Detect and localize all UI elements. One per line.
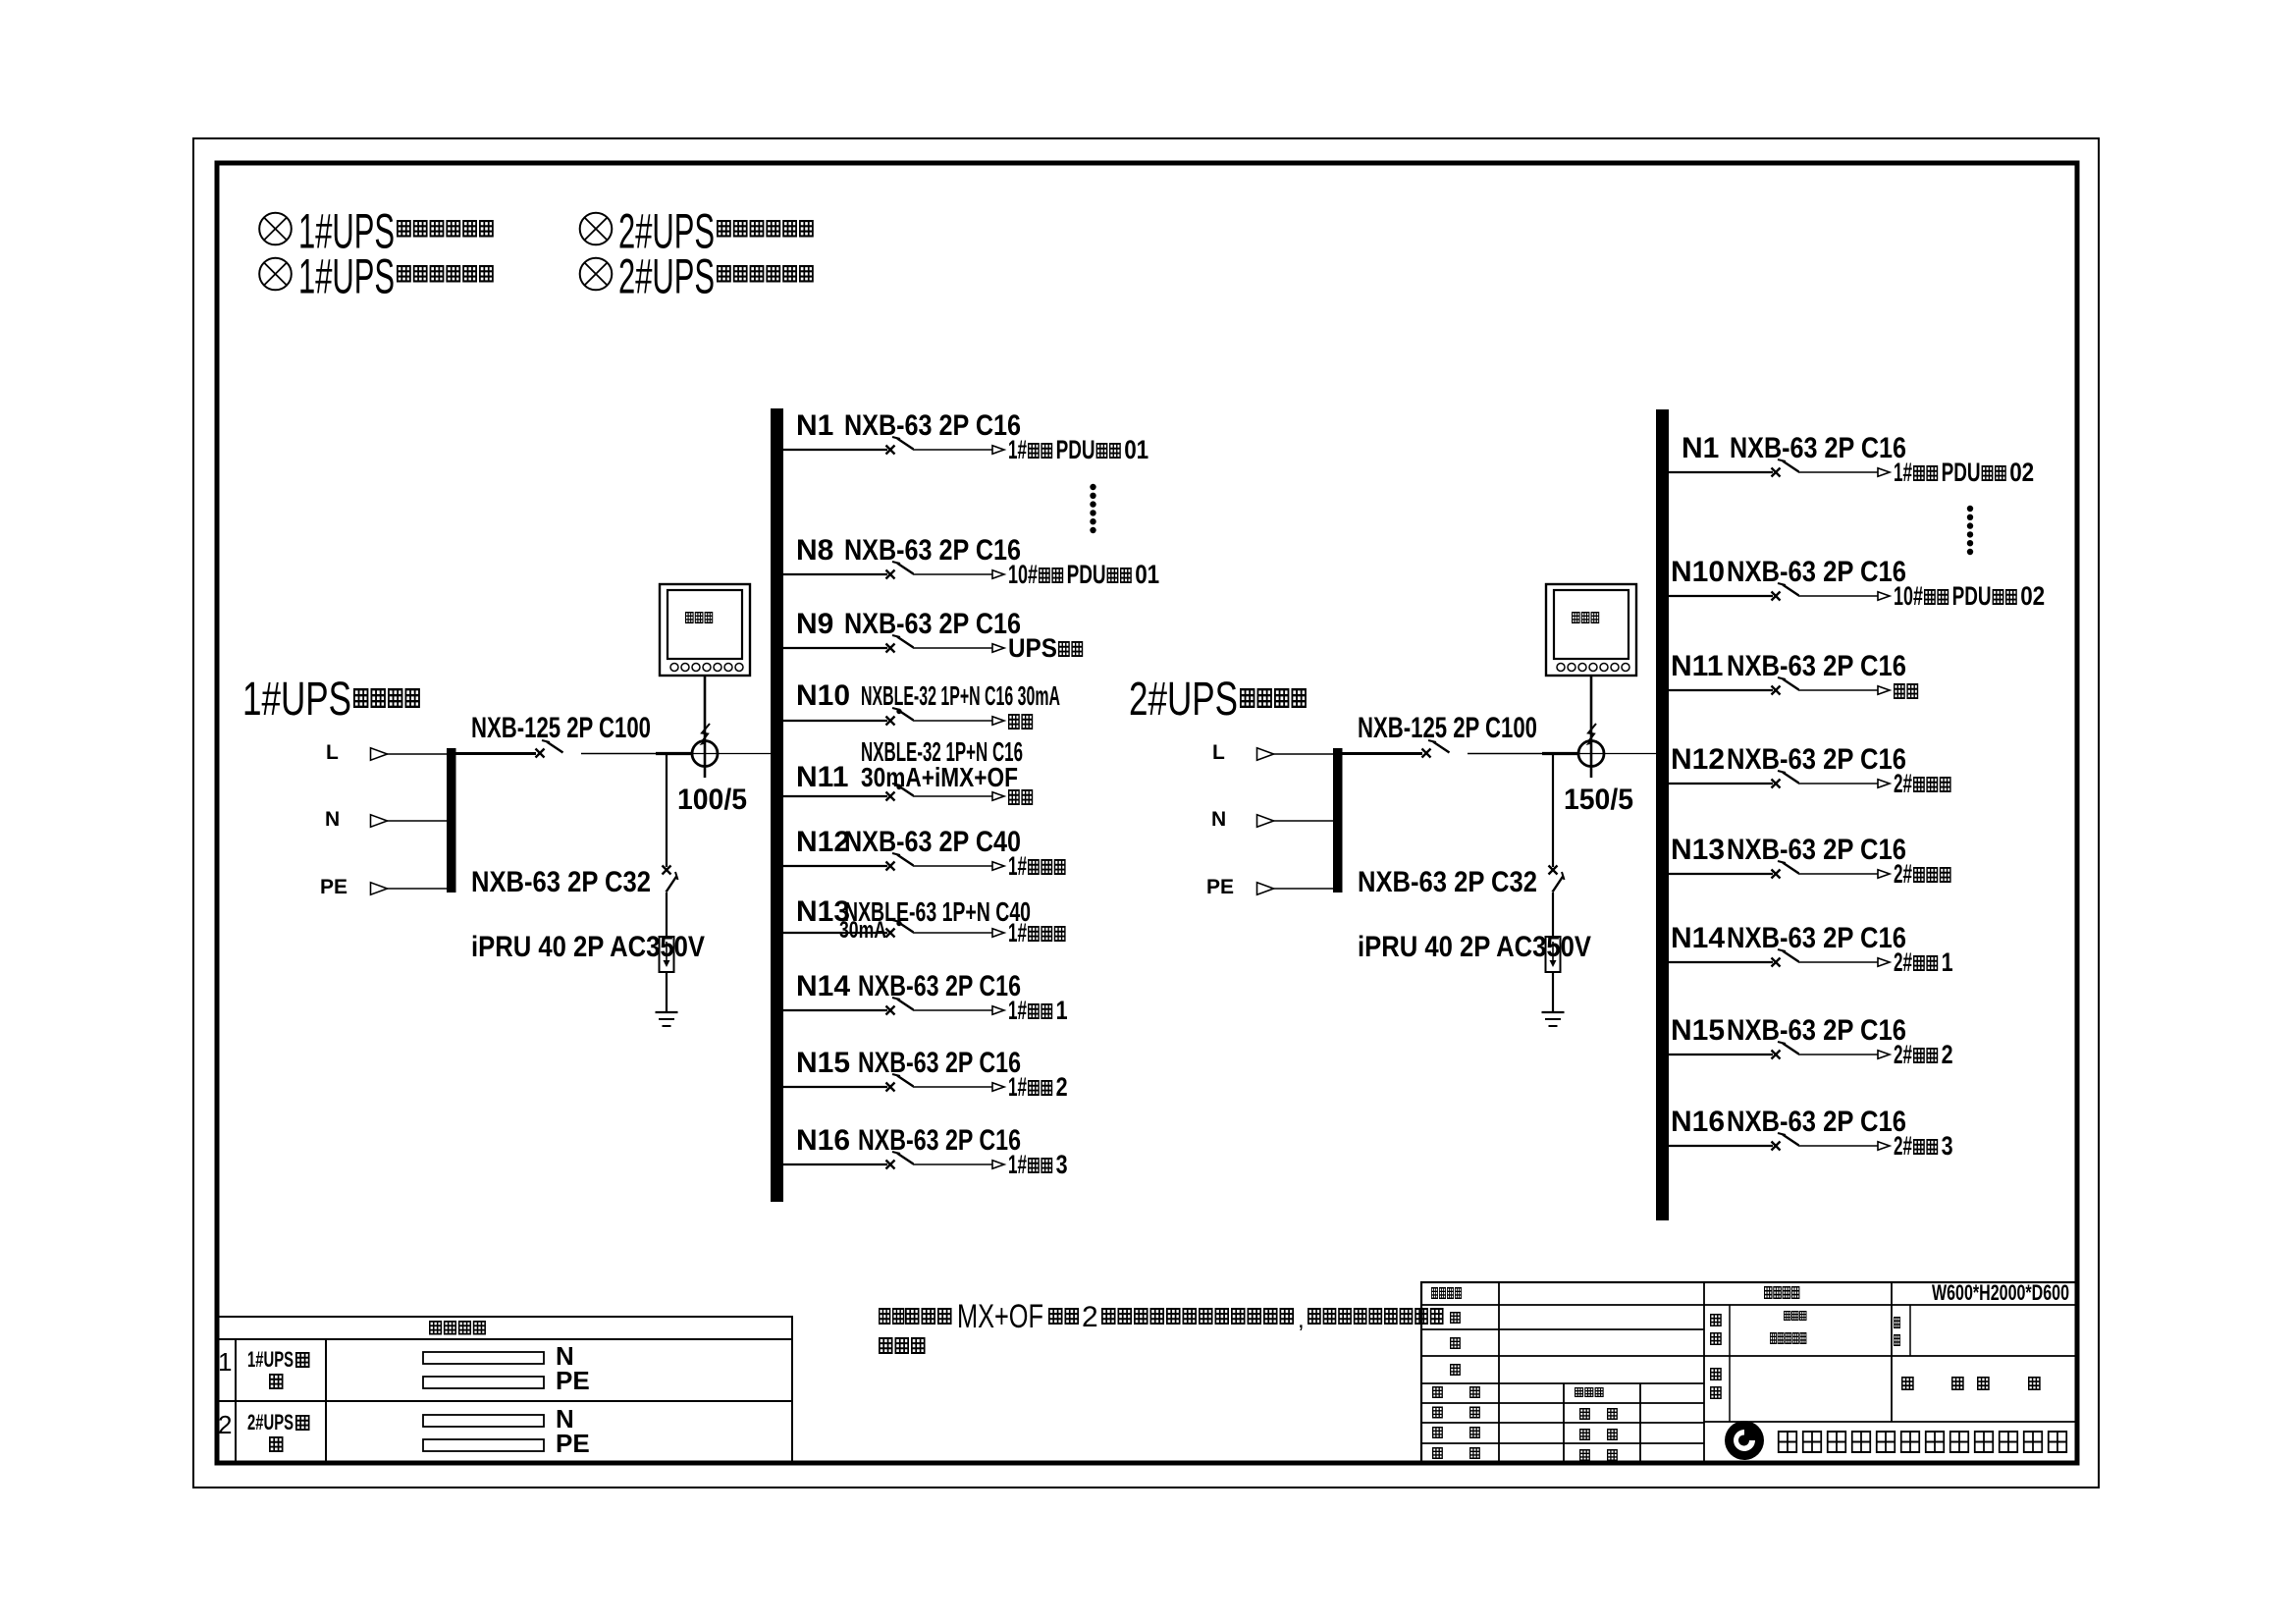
svg-text:PDU: PDU (1067, 560, 1106, 589)
svg-text:1#: 1# (1008, 918, 1027, 947)
svg-text:1#: 1# (1008, 1072, 1027, 1102)
svg-text:,: , (1298, 1307, 1305, 1333)
svg-text:2: 2 (1056, 1072, 1068, 1102)
svg-text:02: 02 (2009, 458, 2034, 487)
svg-text:NXB-63 2P C16: NXB-63 2P C16 (1727, 1106, 1906, 1138)
svg-text:PE: PE (320, 876, 347, 898)
svg-text:W600*H2000*D600: W600*H2000*D600 (1932, 1280, 2069, 1305)
svg-text:NXB-63 2P C16: NXB-63 2P C16 (1727, 922, 1906, 954)
svg-text:NXB-63 2P C16: NXB-63 2P C16 (858, 1124, 1021, 1157)
svg-text:NXB-63 2P C16: NXB-63 2P C16 (1727, 556, 1906, 588)
svg-text:NXB-63 2P C16: NXB-63 2P C16 (1730, 432, 1906, 464)
svg-text:1: 1 (1942, 947, 1953, 977)
svg-text:NXB-63 2P C16: NXB-63 2P C16 (1727, 743, 1906, 776)
svg-text:10#: 10# (1894, 581, 1923, 611)
svg-text:1#UPS: 1#UPS (298, 249, 395, 304)
svg-text:NXB-125 2P C100: NXB-125 2P C100 (1358, 712, 1537, 744)
svg-text:2#: 2# (1894, 947, 1912, 977)
svg-text:N8: N8 (796, 534, 833, 567)
svg-text:1#UPS: 1#UPS (242, 674, 351, 726)
svg-text:1#: 1# (1008, 435, 1027, 464)
svg-text:NXB-63 2P C16: NXB-63 2P C16 (858, 1047, 1021, 1079)
svg-text:NXBLE-32 1P+N C16 30mA: NXBLE-32 1P+N C16 30mA (861, 680, 1060, 711)
svg-text:3: 3 (1056, 1150, 1068, 1179)
svg-text:N14: N14 (796, 970, 850, 1002)
svg-text:N15: N15 (1671, 1014, 1725, 1047)
svg-text:N11: N11 (796, 761, 848, 793)
svg-text:PDU: PDU (1942, 458, 1981, 487)
svg-text:N10: N10 (1671, 556, 1725, 588)
svg-text:N9: N9 (796, 608, 833, 640)
svg-text:N11: N11 (1671, 650, 1723, 682)
svg-text:2#: 2# (1894, 1131, 1912, 1161)
svg-text:30mA: 30mA (839, 917, 886, 944)
svg-text:2#: 2# (1894, 769, 1912, 798)
svg-text:MX+OF: MX+OF (957, 1298, 1043, 1335)
svg-text:NXB-63 2P C16: NXB-63 2P C16 (1727, 1014, 1906, 1047)
svg-text:N16: N16 (796, 1124, 850, 1157)
svg-text:2#UPS: 2#UPS (618, 249, 715, 304)
svg-text:NXB-63 2P C16: NXB-63 2P C16 (1727, 650, 1906, 682)
svg-text:01: 01 (1135, 560, 1159, 589)
svg-text:L: L (326, 741, 339, 764)
svg-text:2: 2 (218, 1410, 232, 1439)
svg-text:2: 2 (1942, 1040, 1953, 1069)
svg-text:01: 01 (1124, 435, 1148, 464)
svg-text:N15: N15 (796, 1047, 850, 1079)
svg-text:N1: N1 (1682, 432, 1719, 464)
svg-text:NXB-63 2P C32: NXB-63 2P C32 (1358, 866, 1537, 898)
svg-text:1#: 1# (1008, 996, 1027, 1025)
svg-text:N14: N14 (1671, 922, 1725, 954)
svg-text:N: N (1211, 808, 1226, 831)
svg-text:PE: PE (556, 1429, 590, 1458)
svg-text:N13: N13 (1671, 834, 1725, 866)
svg-text:NXB-63 2P C40: NXB-63 2P C40 (844, 826, 1021, 858)
svg-text:1#: 1# (1894, 458, 1912, 487)
svg-text:PE: PE (1206, 876, 1234, 898)
svg-text:N12: N12 (796, 826, 850, 858)
svg-text:10#: 10# (1008, 560, 1038, 589)
svg-text:150/5: 150/5 (1564, 784, 1633, 816)
svg-text:NXB-63 2P C16: NXB-63 2P C16 (1727, 834, 1906, 866)
svg-text:2#UPS: 2#UPS (247, 1410, 294, 1434)
svg-text:1: 1 (218, 1347, 232, 1377)
svg-text:2: 2 (1082, 1301, 1098, 1333)
svg-text:PDU: PDU (1952, 581, 1992, 611)
svg-text:1#UPS: 1#UPS (247, 1347, 294, 1372)
svg-text:N1: N1 (796, 409, 833, 442)
svg-text:NXB-63 2P C16: NXB-63 2P C16 (844, 534, 1021, 567)
svg-text:1#: 1# (1008, 1150, 1027, 1179)
svg-text:2#: 2# (1894, 1040, 1912, 1069)
svg-text:2#UPS: 2#UPS (1129, 674, 1238, 726)
svg-text:PE: PE (556, 1366, 590, 1395)
svg-text:NXB-63 2P C16: NXB-63 2P C16 (844, 409, 1021, 442)
svg-text:1: 1 (1056, 996, 1068, 1025)
svg-text:NXB-63 2P C32: NXB-63 2P C32 (471, 866, 651, 898)
svg-text:3: 3 (1942, 1131, 1953, 1161)
svg-text:30mA+iMX+OF: 30mA+iMX+OF (861, 762, 1018, 792)
svg-text:100/5: 100/5 (677, 784, 747, 816)
svg-text:N16: N16 (1671, 1106, 1725, 1138)
svg-text:NXB-63 2P C16: NXB-63 2P C16 (858, 970, 1021, 1002)
svg-text:PDU: PDU (1056, 435, 1095, 464)
svg-text:NXB-63 2P C16: NXB-63 2P C16 (844, 608, 1021, 640)
svg-text:N12: N12 (1671, 743, 1725, 776)
svg-text:2#: 2# (1894, 859, 1912, 889)
svg-text:NXB-125 2P C100: NXB-125 2P C100 (471, 712, 651, 744)
svg-text:1#: 1# (1008, 851, 1027, 881)
svg-text:iPRU 40 2P AC350V: iPRU 40 2P AC350V (1358, 931, 1591, 963)
svg-text:N10: N10 (796, 679, 850, 712)
svg-text:UPS: UPS (1008, 633, 1057, 663)
svg-text:N: N (325, 808, 340, 831)
svg-text:iPRU 40 2P AC350V: iPRU 40 2P AC350V (471, 931, 705, 963)
svg-text:02: 02 (2020, 581, 2045, 611)
svg-text:L: L (1212, 741, 1225, 764)
